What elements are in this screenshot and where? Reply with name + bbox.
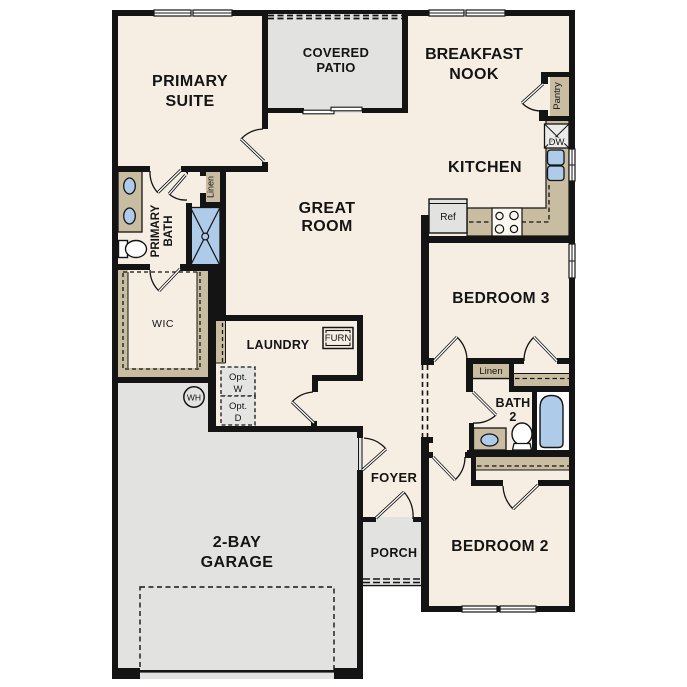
svg-text:Linen: Linen [479, 366, 502, 377]
svg-text:NOOK: NOOK [449, 66, 499, 83]
svg-text:BEDROOM 2: BEDROOM 2 [451, 538, 548, 555]
svg-text:ROOM: ROOM [301, 218, 352, 235]
svg-text:D: D [235, 413, 242, 424]
svg-text:WH: WH [187, 393, 201, 403]
svg-text:BATH: BATH [163, 215, 175, 246]
svg-text:Linen: Linen [206, 176, 216, 198]
svg-text:2-BAY: 2-BAY [213, 534, 262, 551]
svg-text:KITCHEN: KITCHEN [448, 159, 522, 176]
svg-text:PORCH: PORCH [371, 546, 418, 560]
svg-text:GARAGE: GARAGE [201, 554, 274, 571]
svg-text:Opt.: Opt. [229, 372, 247, 383]
svg-text:SUITE: SUITE [165, 93, 214, 110]
svg-text:GREAT: GREAT [299, 200, 356, 217]
svg-text:LAUNDRY: LAUNDRY [247, 338, 310, 352]
svg-text:DW: DW [549, 137, 565, 148]
svg-text:PATIO: PATIO [316, 60, 355, 75]
svg-text:COVERED: COVERED [303, 45, 369, 60]
svg-text:W: W [234, 384, 243, 395]
svg-text:BEDROOM 3: BEDROOM 3 [452, 290, 549, 307]
svg-text:WIC: WIC [152, 318, 174, 330]
svg-text:BATH: BATH [496, 396, 531, 410]
svg-text:Pantry: Pantry [552, 82, 563, 110]
svg-text:Ref: Ref [440, 212, 456, 223]
svg-text:PRIMARY: PRIMARY [150, 204, 162, 257]
svg-text:BREAKFAST: BREAKFAST [425, 46, 523, 63]
svg-text:FOYER: FOYER [371, 470, 418, 485]
svg-text:FURN: FURN [325, 333, 352, 344]
svg-text:Opt.: Opt. [229, 401, 247, 412]
svg-text:PRIMARY: PRIMARY [152, 73, 228, 90]
svg-text:2: 2 [509, 410, 516, 424]
